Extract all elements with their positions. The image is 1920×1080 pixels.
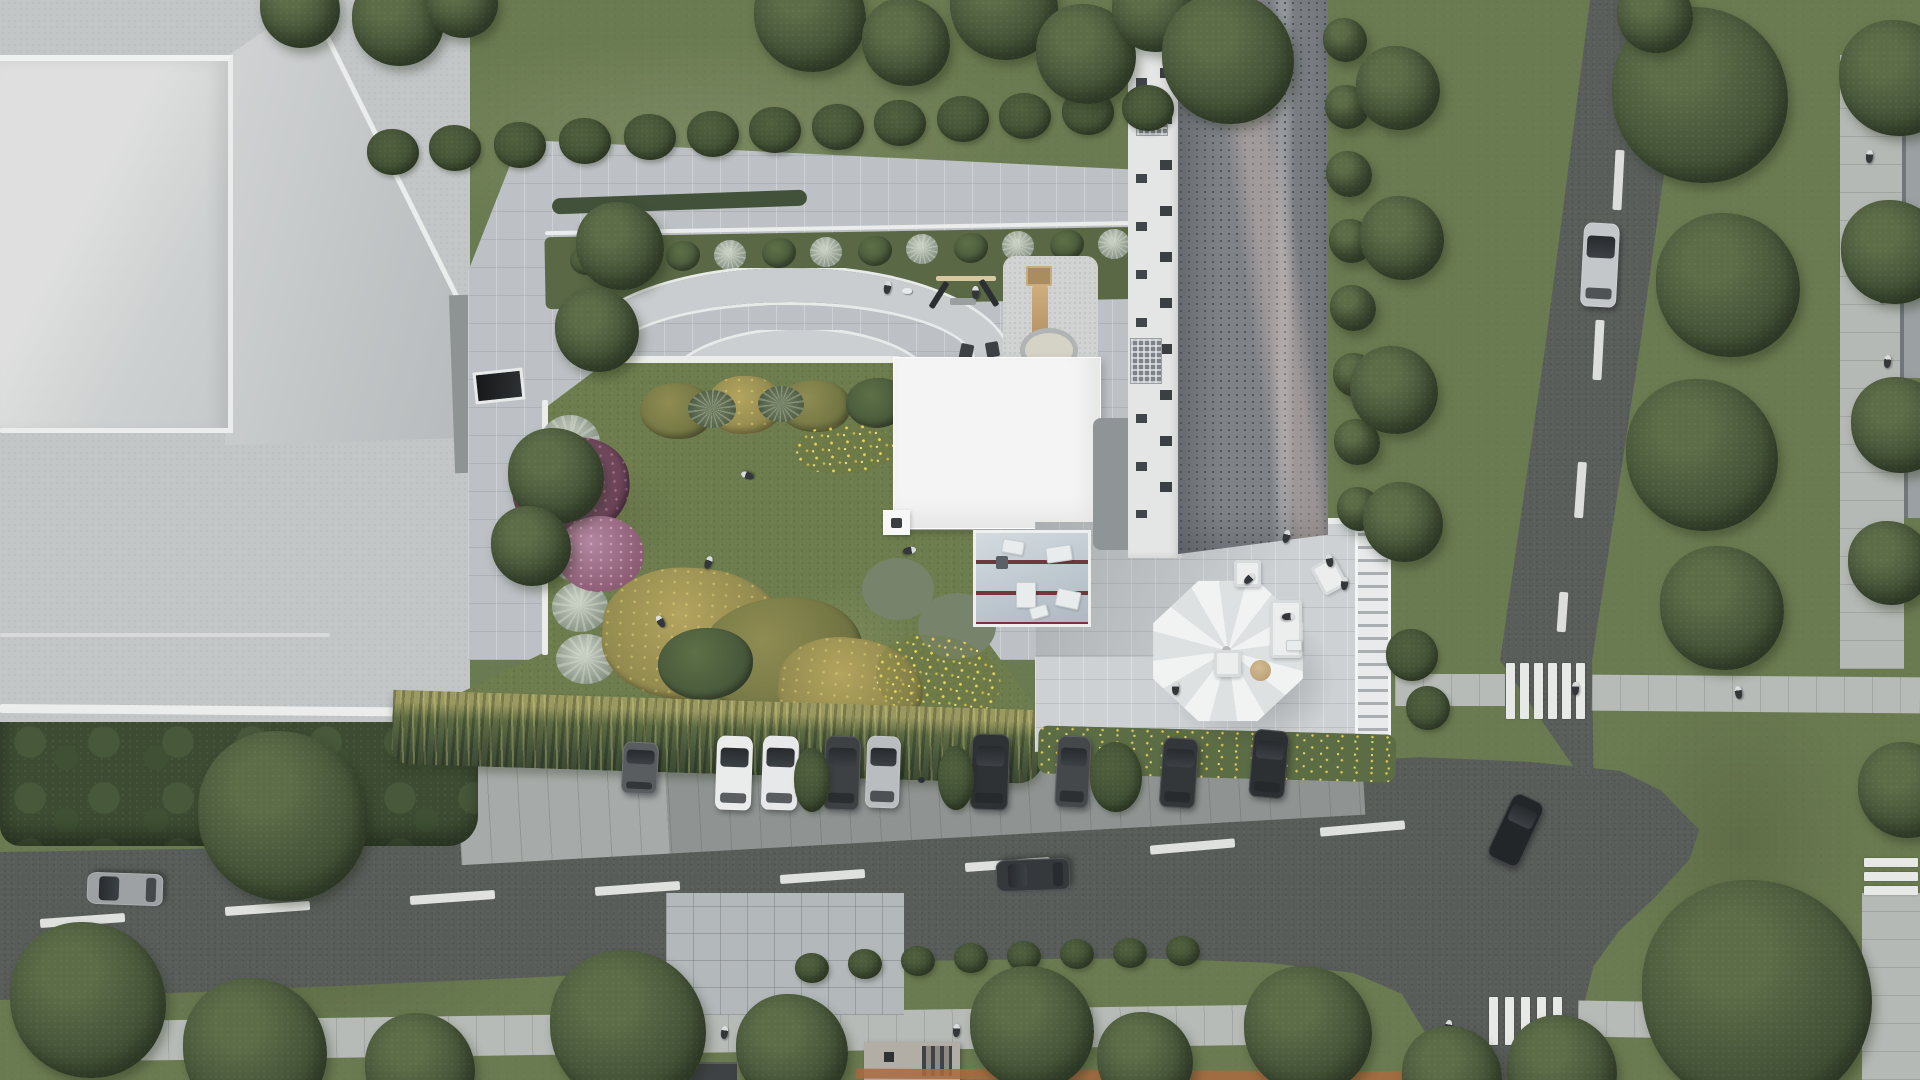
crosswalk-bar (1506, 663, 1515, 719)
crosswalk-bar (1864, 858, 1918, 867)
trimmed-shrub (429, 125, 481, 171)
slide-platform (1026, 266, 1052, 286)
corner-shrub (1406, 686, 1450, 730)
parked-car (865, 735, 901, 808)
aerial-site-render (0, 0, 1920, 1080)
parking-hedge (794, 748, 830, 812)
gym-bench (950, 298, 976, 305)
roof-chimney (883, 510, 910, 535)
trimmed-shrub (1122, 85, 1174, 131)
crosswalk-bar (1505, 997, 1514, 1045)
trimmed-shrub (812, 104, 864, 150)
agave (758, 386, 804, 422)
parked-car (715, 735, 754, 810)
terrace-pouf (1250, 660, 1271, 681)
crosswalk-bar (1520, 663, 1529, 719)
small-shrub (848, 949, 882, 979)
trimmed-shrub (367, 129, 419, 175)
shed-hatch (884, 1052, 894, 1062)
garden-parapet-top (608, 356, 900, 363)
parking-hedge (938, 746, 974, 810)
tree-row-small (1326, 151, 1372, 197)
bed-plant-silver (810, 237, 842, 267)
trimmed-shrub (999, 93, 1051, 139)
agave (688, 390, 736, 428)
tree (862, 0, 950, 86)
crosswalk-bar (1548, 663, 1557, 719)
trimmed-shrub (687, 111, 739, 157)
parked-car (1248, 729, 1290, 800)
person-on-bench (972, 286, 979, 299)
person-terrace (1172, 682, 1179, 695)
driving-car-gray (86, 872, 163, 907)
small-shrub (954, 943, 988, 973)
roof-parapet (0, 428, 233, 433)
bed-plant-silver (1098, 229, 1130, 259)
tree (1350, 346, 1438, 434)
bed-plant-silver (714, 240, 746, 270)
driving-car-silver (1580, 222, 1620, 308)
dog (902, 288, 912, 294)
crosswalk-bar (1489, 997, 1498, 1045)
pedestrian-path-east (1592, 675, 1920, 714)
crosswalk-bar (1864, 886, 1918, 895)
left-building-tall-roof (0, 55, 233, 433)
atrium-furniture (1016, 582, 1036, 608)
small-shrub (901, 946, 935, 976)
tree (1356, 46, 1440, 130)
parked-car (1159, 737, 1200, 809)
trimmed-shrub (874, 100, 926, 146)
white-building-roof (893, 357, 1101, 529)
small-shrub (1060, 939, 1094, 969)
tree-courtyard (555, 288, 639, 372)
tree (1363, 482, 1443, 562)
trimmed-shrub (937, 96, 989, 142)
crosswalk-bar (1534, 663, 1543, 719)
tree-garden-edge (491, 506, 571, 586)
parked-car (970, 733, 1011, 810)
trimmed-shrub (559, 118, 611, 164)
terrace-side-table (1286, 640, 1302, 651)
parked-car (621, 741, 660, 795)
stair-ramp-void (472, 367, 525, 404)
parked-car (1054, 735, 1092, 809)
cat (918, 777, 925, 783)
roof-step-line (0, 633, 330, 637)
tree-row-small (1330, 285, 1376, 331)
trimmed-shrub (494, 122, 546, 168)
corner-shrub (1386, 629, 1438, 681)
terrace-armchair (1214, 650, 1241, 677)
tree-row-small (1323, 18, 1367, 62)
parking-hedge (1090, 742, 1142, 812)
tree-courtyard (576, 202, 664, 290)
trimmed-shrub (624, 114, 676, 160)
person-crosswalk (1572, 682, 1579, 695)
atrium-chair-dark (996, 556, 1008, 569)
driving-car-dark (995, 858, 1070, 893)
crosswalk-bar (1562, 663, 1571, 719)
facade-ac-lattice (1130, 338, 1162, 384)
small-shrub (795, 953, 829, 983)
small-shrub (1166, 936, 1200, 966)
bed-plant-silver (906, 234, 938, 264)
crosswalk-bar (1864, 872, 1918, 881)
trimmed-shrub (749, 107, 801, 153)
fitness-machine (985, 341, 1000, 358)
small-shrub (1113, 938, 1147, 968)
tree (1360, 196, 1444, 280)
